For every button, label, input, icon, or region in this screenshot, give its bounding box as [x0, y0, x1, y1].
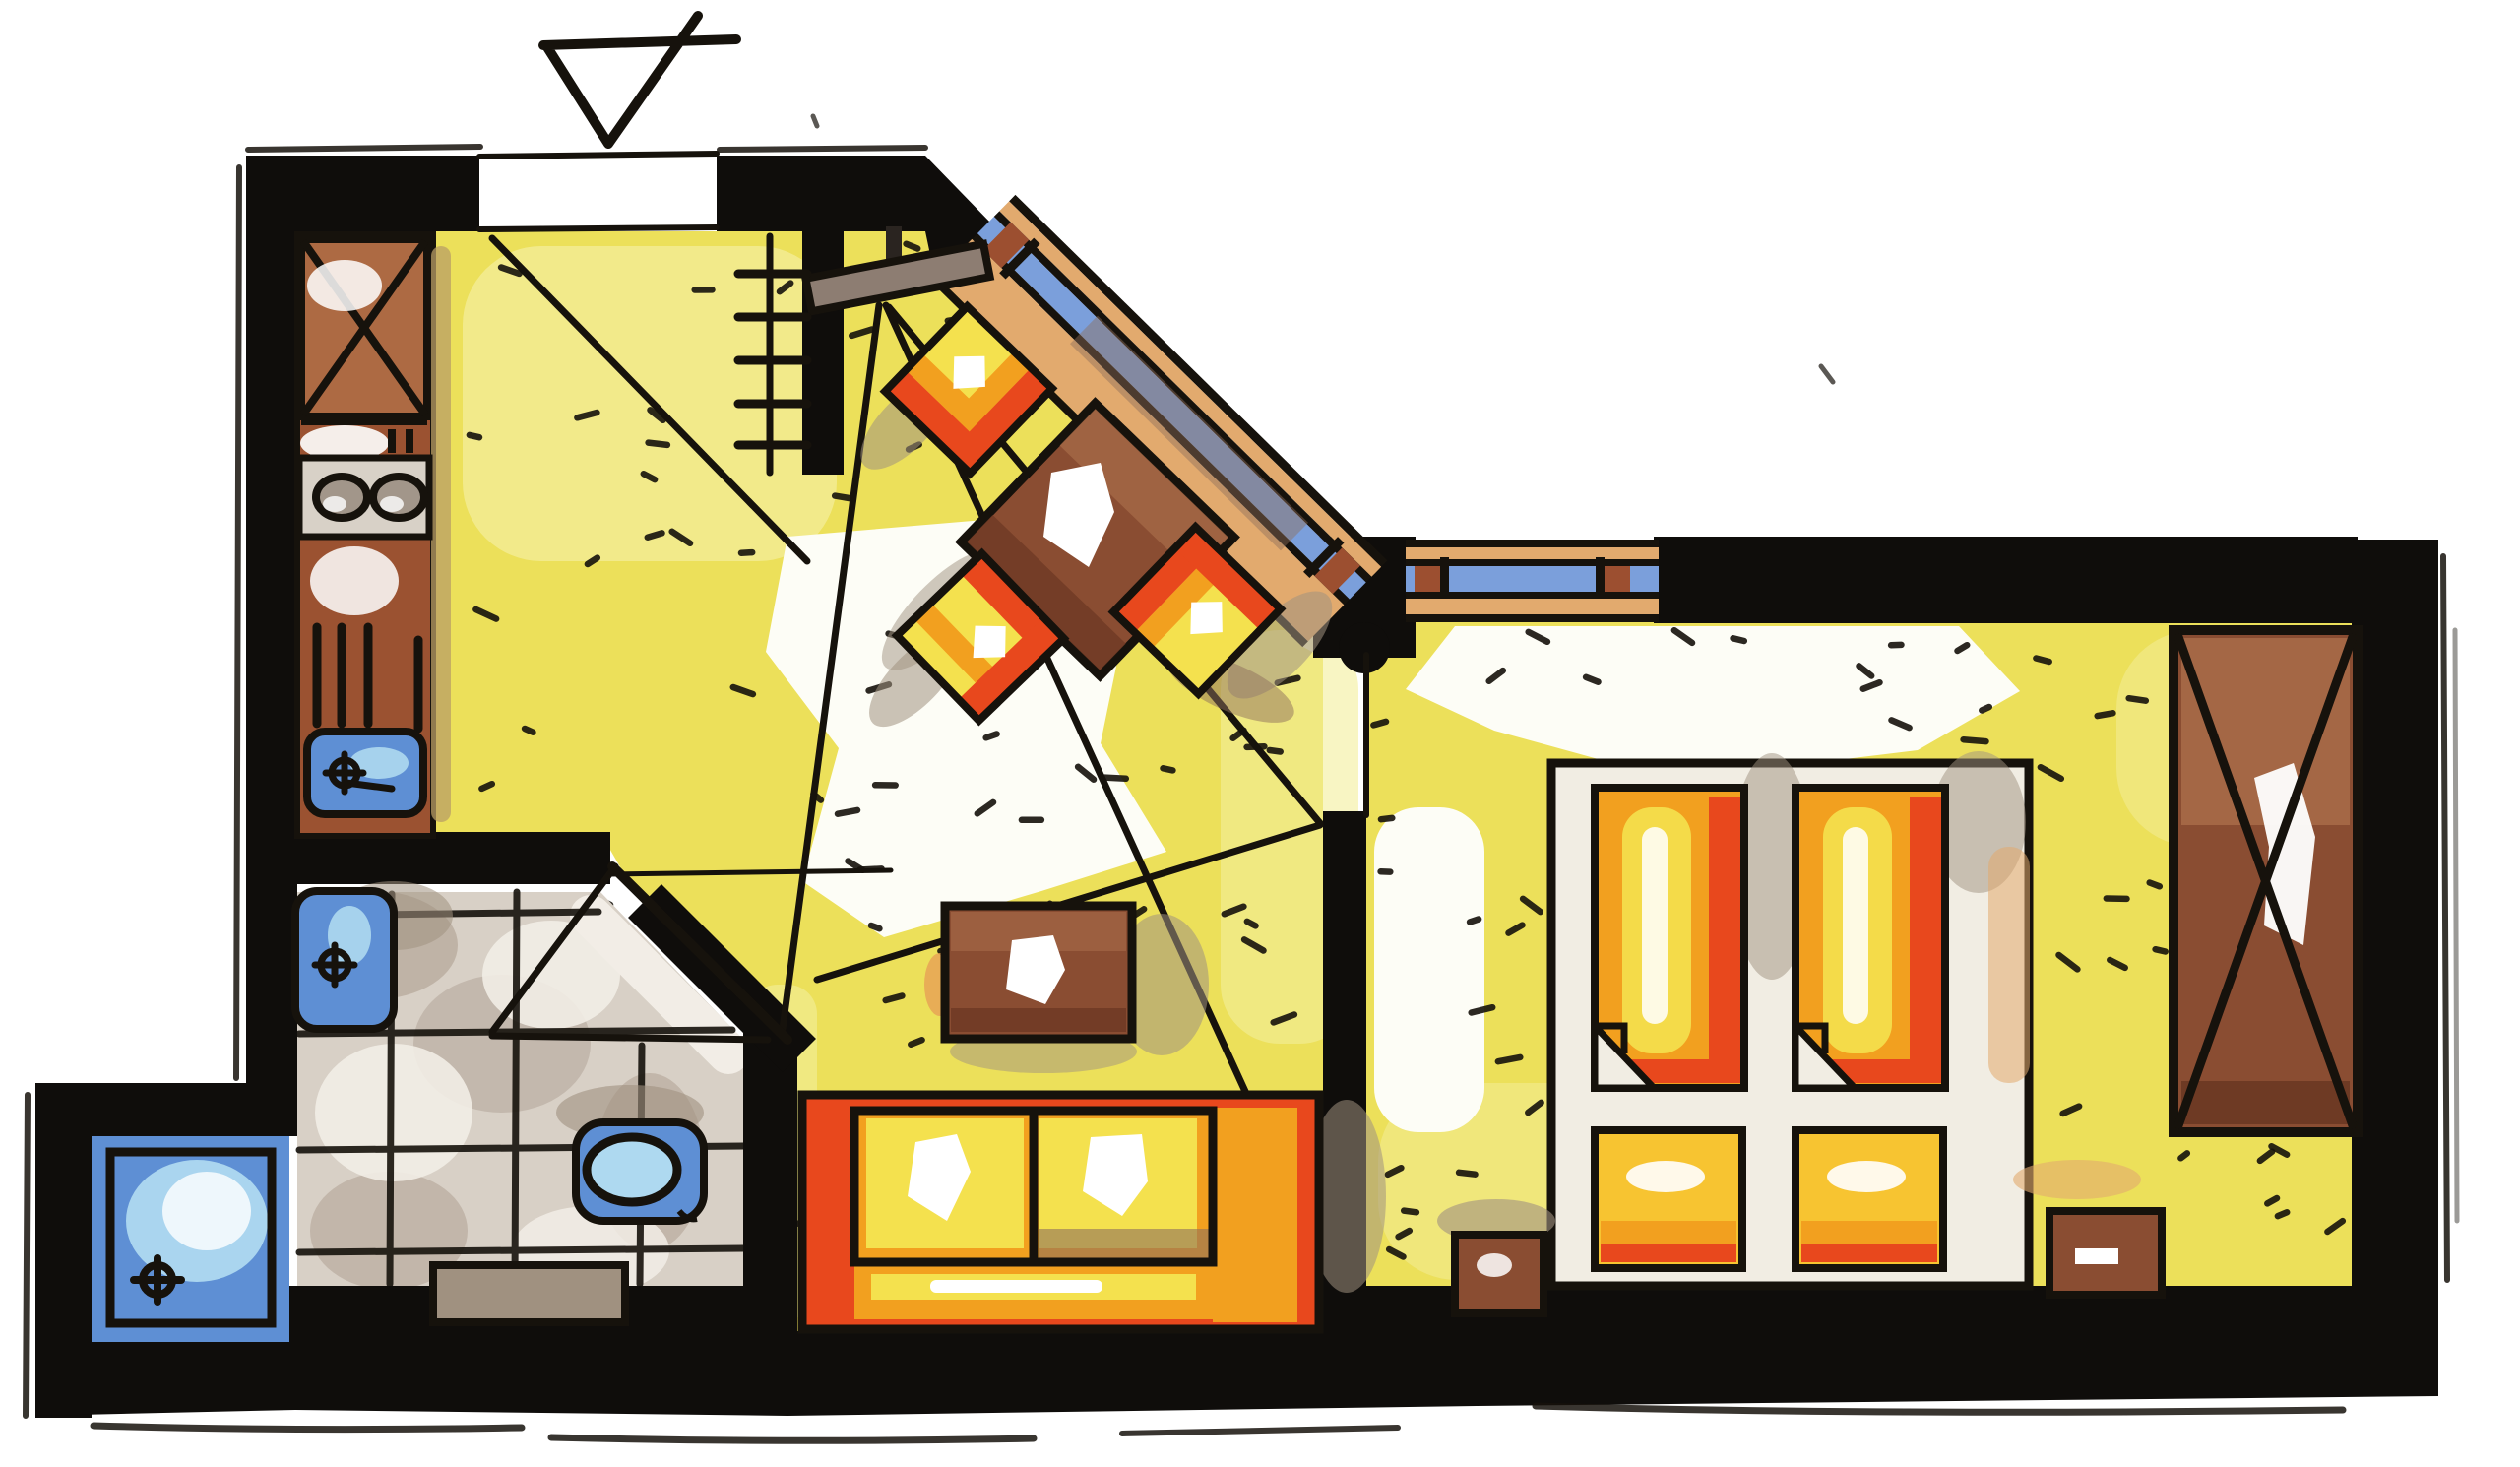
floor-speckle — [2150, 883, 2160, 887]
door-opening-inner-line — [479, 227, 717, 229]
window-mullion — [1605, 566, 1630, 592]
floor-speckle — [481, 784, 491, 789]
floor-speckle — [1164, 768, 1173, 770]
counter-highlight — [310, 546, 399, 615]
floor-speckle — [649, 443, 667, 445]
nightstand-handle — [2075, 1248, 2118, 1264]
window-mullion — [1415, 566, 1440, 592]
floor-speckle — [1373, 722, 1386, 726]
floor-speckle — [2278, 1212, 2287, 1216]
floor-speckle — [648, 533, 662, 537]
platform-tan-smudge — [1988, 847, 2030, 1083]
floor-speckle — [525, 729, 533, 733]
floor-speckle — [1247, 922, 1256, 926]
floor-speckle — [1964, 739, 1986, 741]
floor-speckle — [1586, 677, 1598, 682]
bed — [1795, 788, 1945, 1268]
floor-speckle — [1498, 1057, 1520, 1061]
coffee-table-dark-band — [951, 1008, 1126, 1032]
floor-speckle — [2180, 1153, 2186, 1158]
burner — [373, 477, 424, 518]
wall-hall-stub — [802, 231, 844, 475]
wardrobe — [2173, 630, 2358, 1132]
toilet-seat — [587, 1137, 677, 1202]
floor-speckle — [907, 244, 918, 249]
floor-speckle — [1270, 750, 1281, 752]
floor-speckle — [2129, 698, 2146, 701]
counter-shadow-strip — [431, 246, 451, 822]
window-frame-line — [1406, 592, 1659, 599]
coffee-table-group — [924, 906, 1209, 1073]
wall-kitchen-bath-divider — [293, 832, 610, 884]
cushion-shadow-brown — [1039, 1229, 1209, 1258]
floor-speckle — [2098, 713, 2113, 716]
pillow-highlight — [1626, 1161, 1705, 1192]
counter-divider-line — [301, 417, 427, 425]
wardrobe-dark-band — [2181, 1081, 2350, 1124]
bedroom-window — [1406, 540, 1659, 622]
floor-plan-canvas — [0, 0, 2520, 1467]
wall-right — [2352, 540, 2438, 1290]
burner — [316, 477, 367, 518]
pillow-red-edge — [1601, 1244, 1736, 1262]
duvet-red-edge — [1709, 797, 1740, 1083]
window-sill — [1406, 599, 1659, 614]
wall-left — [246, 156, 297, 1091]
floor-speckle — [1459, 1173, 1475, 1175]
floor-speckle — [2156, 949, 2166, 951]
floor-speckle — [911, 1040, 921, 1045]
floor-speckle — [871, 925, 879, 928]
bathroom-door-swing — [492, 1036, 768, 1040]
bath-mat — [433, 1265, 625, 1322]
nightstand-shadow — [2013, 1160, 2141, 1199]
sofa-right-arm — [1213, 1108, 1297, 1322]
sofa — [802, 1095, 1386, 1329]
floor-speckle — [741, 552, 752, 553]
bedroom-floor-highlight — [1374, 807, 1484, 1132]
shower-highlight-core — [162, 1172, 251, 1250]
kitchen — [297, 234, 451, 836]
floor-plan-drawing — [0, 0, 2520, 1467]
window-sill-edge — [1406, 614, 1659, 622]
nightstand-highlight — [1477, 1253, 1512, 1277]
duvet-red-edge — [1910, 797, 1941, 1083]
door-opening-outer-line — [479, 154, 717, 157]
wall-bedroom-top — [1654, 537, 2358, 623]
burner-highlight — [323, 496, 346, 512]
floor-speckle — [2036, 659, 2048, 663]
floor-speckle — [470, 435, 479, 437]
floor-speckle — [886, 996, 903, 1001]
floor-speckle — [838, 810, 857, 814]
floor-speckle — [1404, 1211, 1417, 1213]
front-band-highlight — [930, 1280, 1102, 1293]
cabinet-highlight — [307, 260, 382, 311]
floor-speckle — [1733, 638, 1744, 641]
floor-speckle — [1381, 818, 1392, 819]
bed — [1595, 788, 1744, 1268]
pillow-highlight — [1827, 1161, 1906, 1192]
floor-speckle — [1982, 707, 1989, 711]
floor-speckle — [1470, 920, 1479, 923]
floor-speckle — [835, 496, 851, 499]
duvet-highlight — [1843, 827, 1868, 1024]
burner-highlight — [380, 496, 404, 512]
floor-speckle — [986, 734, 997, 738]
pillow-red-edge — [1801, 1244, 1937, 1262]
duvet-highlight — [1642, 827, 1668, 1024]
wall-bathroom-right — [743, 1024, 797, 1331]
window-outer-edge — [1406, 540, 1659, 547]
floor-speckle — [1104, 778, 1126, 779]
